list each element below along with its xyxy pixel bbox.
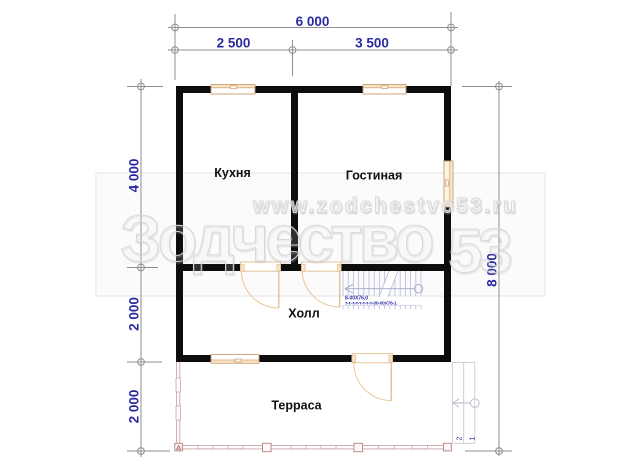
svg-text:Гостиная: Гостиная — [346, 169, 403, 183]
svg-text:1: 1 — [470, 437, 477, 441]
svg-text:Холл: Холл — [288, 307, 319, 321]
svg-text:4 000: 4 000 — [127, 159, 142, 193]
svg-text:2 000: 2 000 — [127, 390, 142, 424]
svg-text:8-00X76,0: 8-00X76,0 — [345, 295, 368, 301]
svg-text:2 500: 2 500 — [217, 36, 251, 51]
svg-text:53: 53 — [448, 217, 511, 286]
svg-text:Кухня: Кухня — [214, 166, 251, 180]
svg-text:3 500: 3 500 — [355, 36, 389, 51]
svg-text:Терраса: Терраса — [271, 399, 322, 413]
svg-text:6 000: 6 000 — [296, 14, 330, 29]
svg-text:2: 2 — [457, 437, 464, 441]
svg-text:2 000: 2 000 — [127, 297, 142, 331]
svg-text:Зодчество: Зодчество — [120, 202, 432, 275]
svg-text:т-т-т-т-т-т-т-т-00-00X76-1: т-т-т-т-т-т-т-т-00-00X76-1 — [345, 301, 397, 307]
